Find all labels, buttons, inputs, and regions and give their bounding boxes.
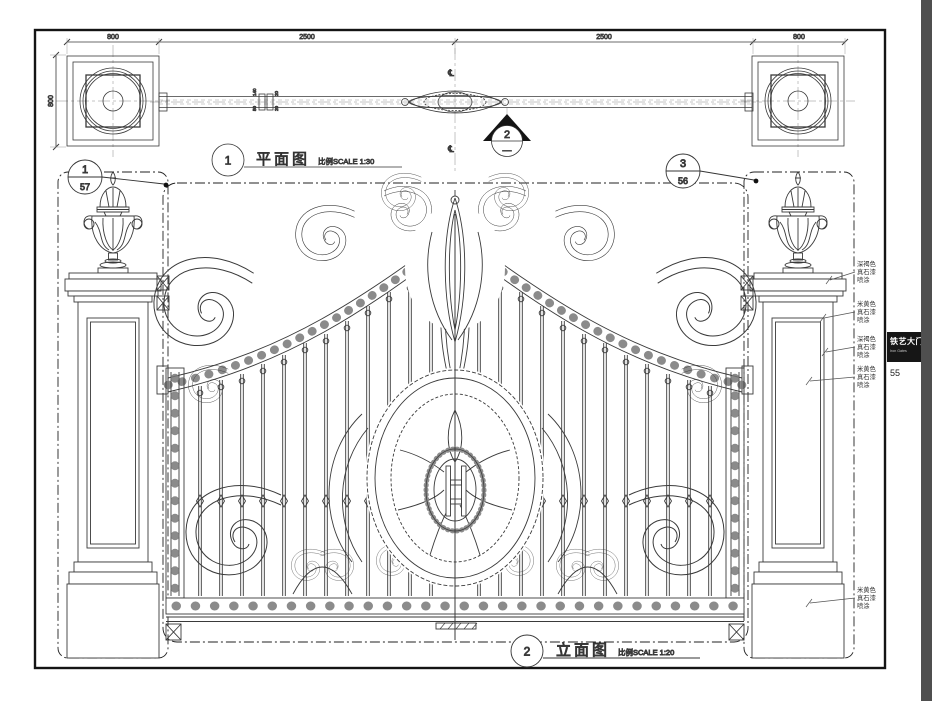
dimension-label: 50 bbox=[252, 105, 257, 111]
elevation-callout-number: 2 bbox=[524, 645, 531, 659]
elevation-title: 立面图 bbox=[556, 642, 610, 659]
sheet-tab-subtitle: Iron Gates bbox=[890, 349, 907, 353]
sheet-tab-title: 铁艺大门 bbox=[890, 336, 924, 346]
page-edge-strip bbox=[921, 0, 932, 701]
dimension-label: 800 bbox=[48, 95, 55, 107]
callout-number: 1 bbox=[82, 164, 88, 176]
centerline-mark-icon: ℄ bbox=[447, 68, 454, 78]
dimension-label: 20 bbox=[274, 105, 279, 111]
finish-note-line: 米黄色 bbox=[857, 585, 877, 594]
finish-note-line: 喷涂 bbox=[857, 315, 870, 324]
section-sheet: — bbox=[503, 145, 512, 155]
finish-note-line: 米黄色 bbox=[857, 364, 877, 373]
dimension-label: 20 bbox=[274, 90, 279, 96]
finish-note-line: 喷涂 bbox=[857, 275, 870, 284]
finish-note-line: 喷涂 bbox=[857, 350, 870, 359]
dimension-label: 2500 bbox=[299, 34, 315, 41]
drawing-canvas: 800 2500 2500 800 800 bbox=[0, 0, 932, 701]
dimension-label: 800 bbox=[107, 34, 119, 41]
centerline-mark-icon: ℄ bbox=[447, 144, 454, 154]
plan-title: 平面图 bbox=[256, 151, 310, 168]
finish-note-line: 真石漆 bbox=[857, 593, 877, 602]
finish-note-line: 喷涂 bbox=[857, 601, 870, 610]
sheet-tab: 铁艺大门 Iron Gates bbox=[887, 332, 926, 362]
drawing-sheet: 800 2500 2500 800 800 bbox=[0, 0, 932, 701]
finish-note-line: 真石漆 bbox=[857, 342, 877, 351]
callout-sheet: 57 bbox=[80, 182, 90, 192]
elevation-scale: 比例SCALE 1:20 bbox=[618, 647, 674, 657]
finish-note-line: 米黄色 bbox=[857, 299, 877, 308]
finish-note-line: 真石漆 bbox=[857, 307, 877, 316]
callout-sheet: 56 bbox=[678, 176, 688, 186]
dimension-label: 800 bbox=[793, 34, 805, 41]
finish-note-line: 深褐色 bbox=[857, 259, 877, 268]
page-number: 55 bbox=[890, 368, 900, 378]
dimension-label: 140 bbox=[252, 88, 257, 96]
finish-note-line: 真石漆 bbox=[857, 372, 877, 381]
dimension-label: 2500 bbox=[596, 34, 612, 41]
finish-note-line: 深褐色 bbox=[857, 334, 877, 343]
finish-note-line: 喷涂 bbox=[857, 380, 870, 389]
section-number: 2 bbox=[504, 129, 510, 141]
callout-number: 3 bbox=[680, 158, 686, 170]
plan-scale: 比例SCALE 1:30 bbox=[318, 156, 374, 166]
finish-note-line: 真石漆 bbox=[857, 267, 877, 276]
plan-callout-number: 1 bbox=[225, 154, 232, 168]
